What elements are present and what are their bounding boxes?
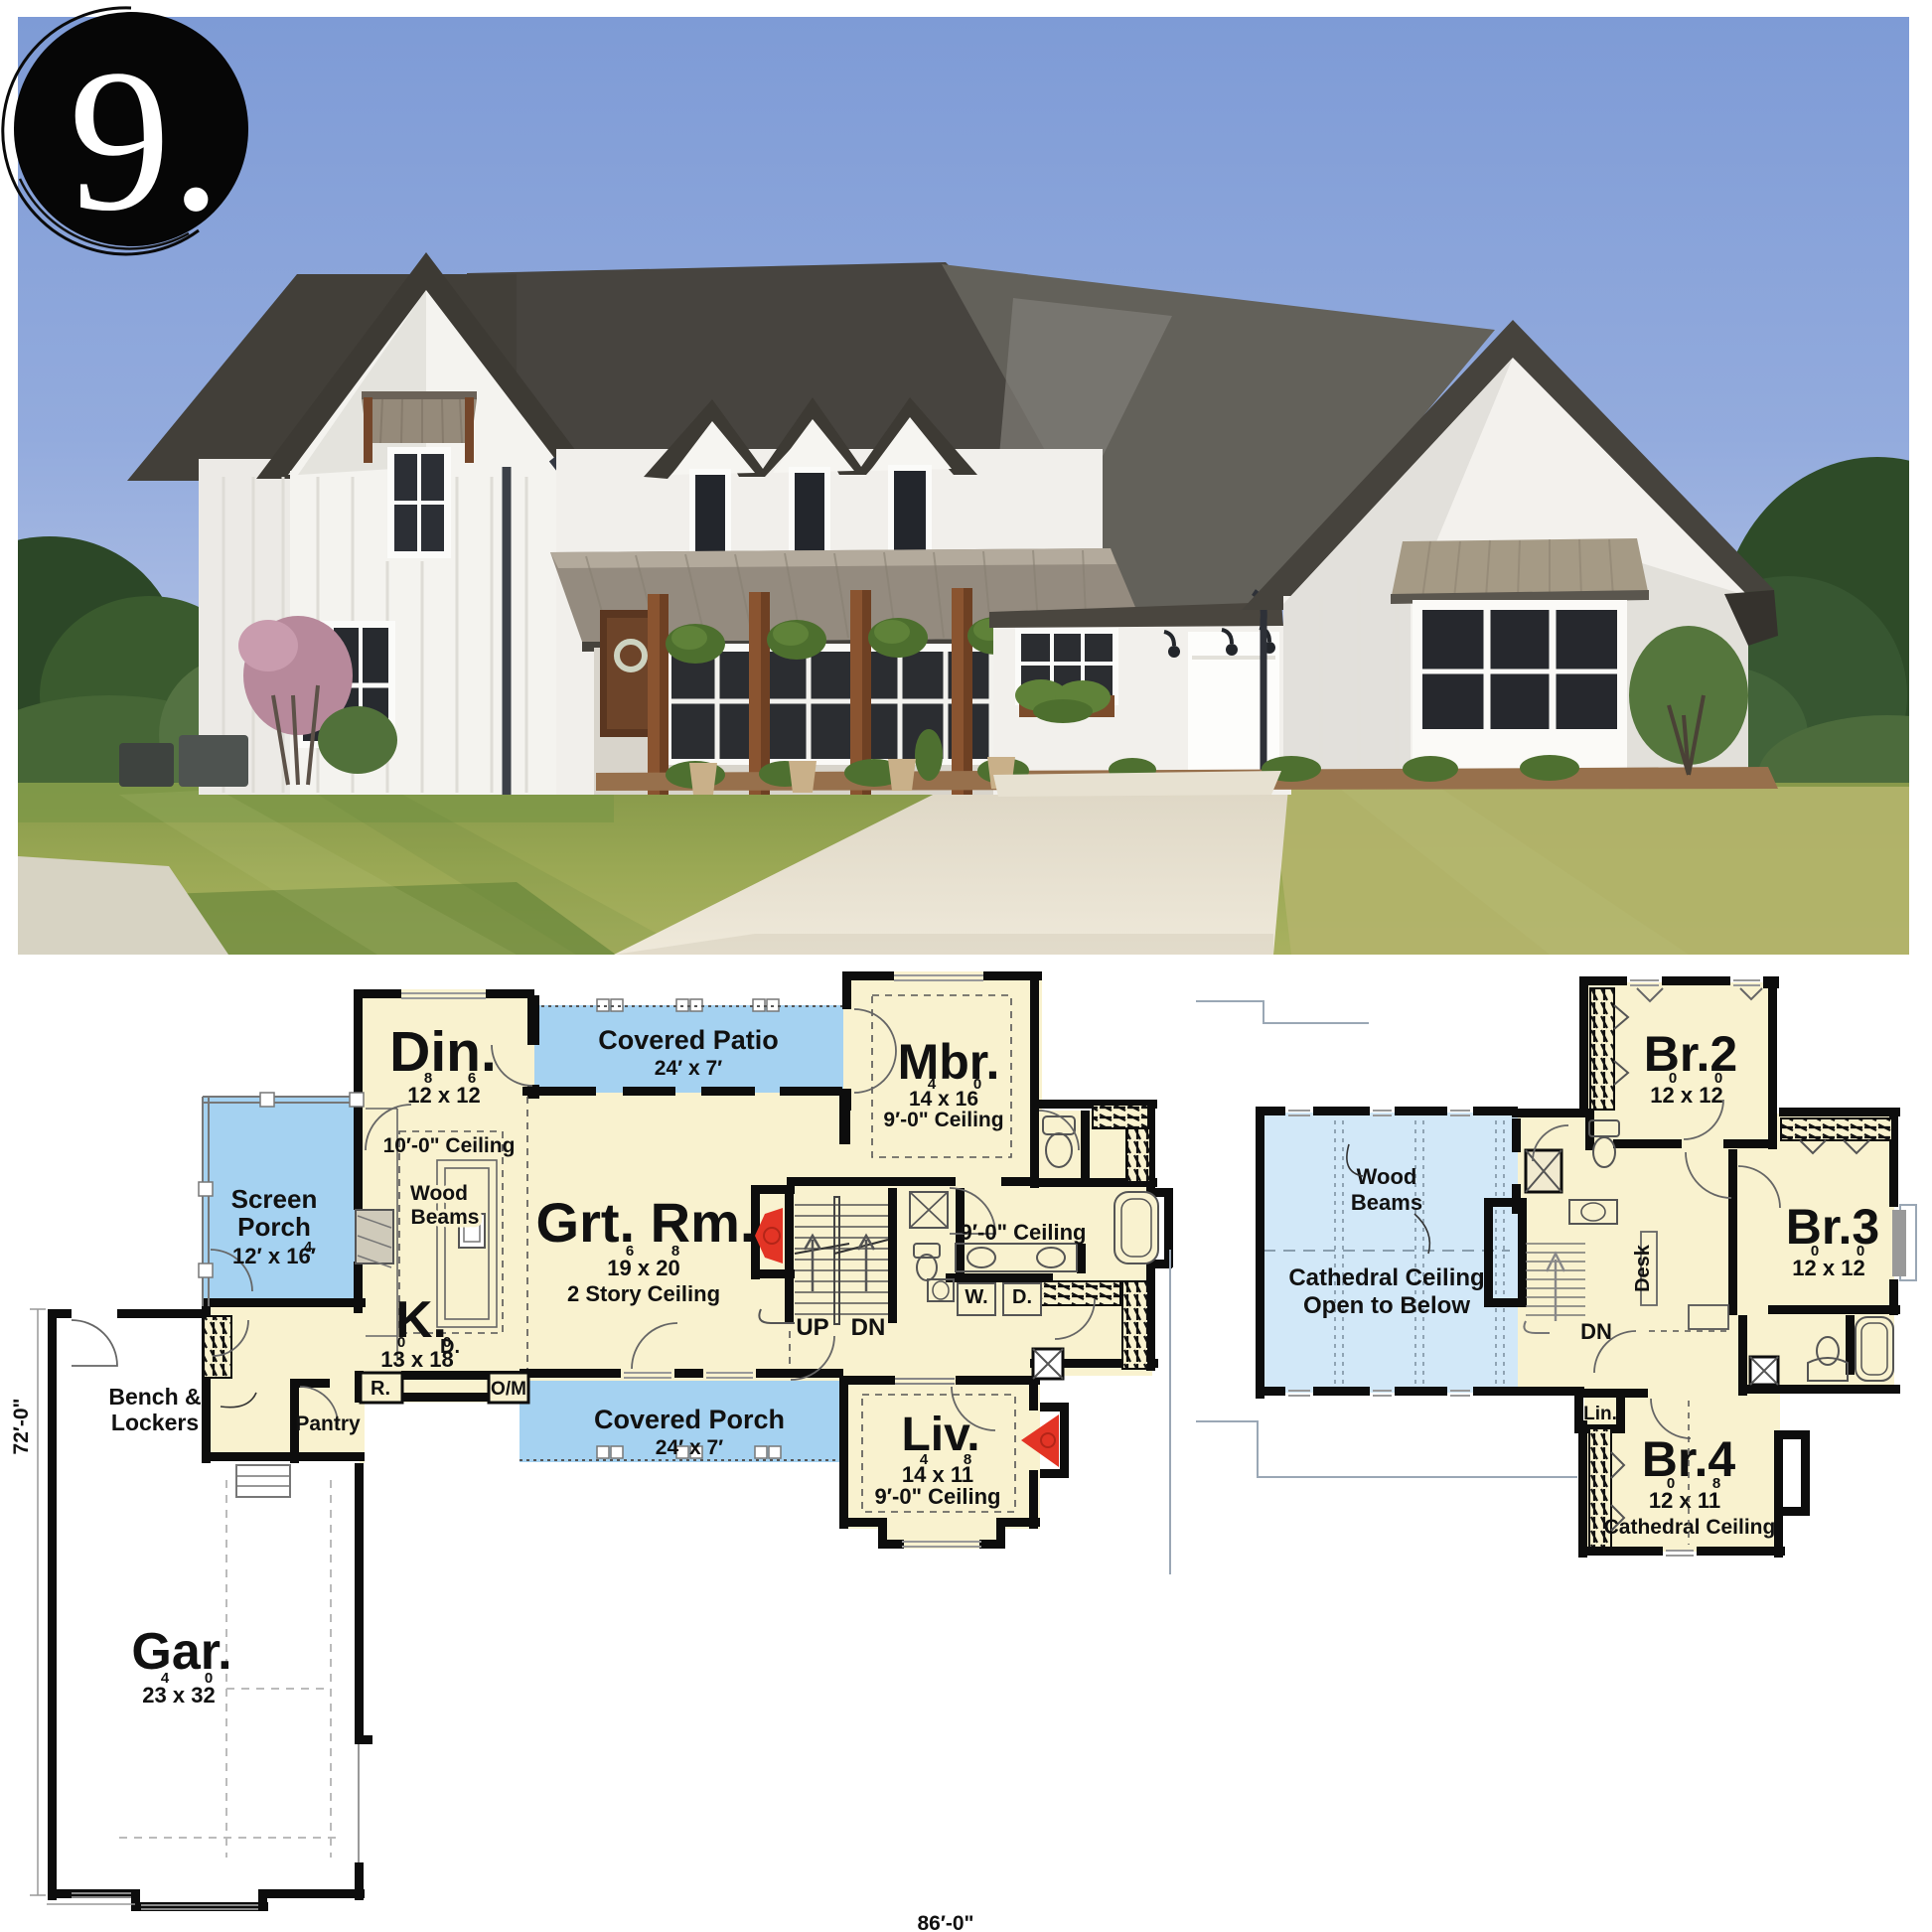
svg-text:9′-0" Ceiling: 9′-0" Ceiling — [875, 1484, 1001, 1509]
svg-text:Lin.: Lin. — [1583, 1404, 1617, 1424]
svg-text:Din.: Din. — [389, 1020, 497, 1084]
svg-text:Br.3: Br.3 — [1786, 1199, 1880, 1255]
svg-text:Cathedral Ceiling: Cathedral Ceiling — [1288, 1264, 1484, 1291]
svg-text:0: 0 — [1857, 1243, 1864, 1260]
svg-text:DN: DN — [851, 1314, 886, 1341]
svg-text:Lockers: Lockers — [111, 1410, 199, 1435]
svg-text:Covered Porch: Covered Porch — [594, 1405, 785, 1434]
svg-text:Mbr.: Mbr. — [898, 1034, 1000, 1090]
svg-text:Wood: Wood — [410, 1182, 468, 1205]
svg-text:D.: D. — [1012, 1286, 1032, 1308]
svg-text:4: 4 — [928, 1076, 937, 1093]
svg-text:Screen: Screen — [231, 1184, 318, 1214]
svg-text:Wood: Wood — [1357, 1164, 1417, 1189]
svg-text:12 x 11: 12 x 11 — [1649, 1488, 1720, 1513]
svg-text:0: 0 — [397, 1334, 405, 1351]
svg-text:Grt. Rm.: Grt. Rm. — [536, 1191, 756, 1254]
svg-text:9′-0" Ceiling: 9′-0" Ceiling — [961, 1220, 1087, 1245]
svg-text:14 x 16: 14 x 16 — [909, 1088, 978, 1111]
svg-text:72′-0": 72′-0" — [10, 1398, 33, 1454]
svg-text:8: 8 — [964, 1451, 971, 1468]
svg-text:19 x 20: 19 x 20 — [607, 1256, 679, 1280]
svg-text:Pantry: Pantry — [295, 1412, 361, 1435]
svg-text:0: 0 — [973, 1076, 981, 1093]
svg-text:O/M: O/M — [491, 1379, 526, 1400]
svg-text:0: 0 — [1667, 1475, 1675, 1492]
svg-text:Beams: Beams — [1351, 1190, 1422, 1215]
svg-text:2 Story Ceiling: 2 Story Ceiling — [567, 1281, 720, 1306]
svg-text:8: 8 — [671, 1243, 679, 1260]
svg-text:9.: 9. — [69, 28, 222, 253]
svg-text:0: 0 — [1714, 1070, 1722, 1087]
svg-text:9′-0" Ceiling: 9′-0" Ceiling — [883, 1109, 1003, 1131]
svg-text:W.: W. — [965, 1286, 987, 1308]
svg-text:Bench &: Bench & — [108, 1384, 201, 1410]
svg-text:Gar.: Gar. — [131, 1623, 231, 1681]
svg-text:D.: D. — [440, 1336, 460, 1358]
svg-text:Open to Below: Open to Below — [1303, 1292, 1470, 1319]
svg-text:4: 4 — [920, 1451, 929, 1468]
svg-text:R.: R. — [371, 1378, 390, 1400]
svg-text:Porch: Porch — [237, 1212, 311, 1242]
svg-text:UP: UP — [796, 1314, 828, 1341]
svg-text:Beams: Beams — [411, 1206, 480, 1229]
svg-text:24′ x 7′: 24′ x 7′ — [656, 1436, 723, 1459]
svg-text:12 x 12: 12 x 12 — [1792, 1256, 1864, 1280]
svg-text:4: 4 — [304, 1239, 313, 1256]
svg-text:0: 0 — [205, 1670, 213, 1687]
svg-text:86′-0": 86′-0" — [917, 1912, 973, 1932]
svg-text:Covered Patio: Covered Patio — [598, 1025, 779, 1055]
svg-text:6: 6 — [626, 1243, 634, 1260]
svg-text:DN: DN — [1580, 1319, 1612, 1344]
svg-text:6: 6 — [468, 1070, 476, 1087]
svg-text:0: 0 — [1669, 1070, 1677, 1087]
svg-text:0: 0 — [1811, 1243, 1819, 1260]
svg-text:8: 8 — [1712, 1475, 1720, 1492]
svg-text:8: 8 — [424, 1070, 432, 1087]
svg-text:12 x 12: 12 x 12 — [1650, 1083, 1722, 1108]
svg-text:24′ x 7′: 24′ x 7′ — [655, 1057, 722, 1080]
svg-text:Br.2: Br.2 — [1644, 1026, 1738, 1082]
svg-text:Cathedral Ceiling: Cathedral Ceiling — [1604, 1516, 1776, 1539]
svg-text:10′-0" Ceiling: 10′-0" Ceiling — [383, 1134, 516, 1157]
svg-text:4: 4 — [161, 1670, 170, 1687]
svg-text:Desk: Desk — [1632, 1244, 1654, 1292]
